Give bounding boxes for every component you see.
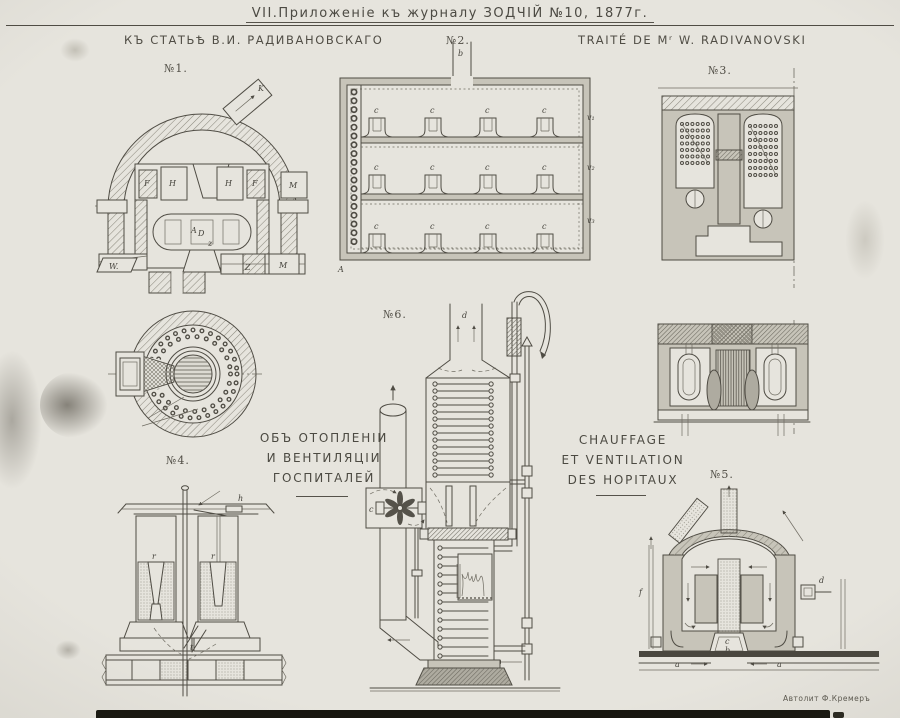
paper-spot-2 <box>60 38 90 62</box>
paper-spot <box>55 640 81 660</box>
fig4-letter-h: h <box>238 494 243 503</box>
round-grate <box>166 347 220 401</box>
caption-russian-rule <box>296 496 348 497</box>
fig2-letter-c: c <box>542 163 547 172</box>
fig5-top-pipe <box>721 486 737 533</box>
fig1-letter-m2: M <box>278 261 288 270</box>
fig2-letter-a: A <box>337 265 344 274</box>
fig6-right-pipes <box>507 292 550 680</box>
fig6-apparatus: d <box>362 288 567 693</box>
round-fire-door <box>116 352 144 396</box>
fig1-letter-d: D <box>197 229 205 238</box>
lithograph-plate: VII.Приложеніе къ журналу ЗОДЧІЙ №10, 18… <box>0 0 900 718</box>
fig6-letter-d: d <box>462 311 467 320</box>
fig2-letter-v3: v₃ <box>587 216 595 225</box>
fig2-letter-b: b <box>458 49 463 58</box>
fig1-letter-a: A <box>190 226 197 235</box>
fig1-letter-k: K <box>257 84 265 93</box>
fig5-damper-box <box>801 585 831 599</box>
fig3-chamber-section <box>652 58 822 295</box>
fig-round-section <box>108 296 263 454</box>
fig5-ground: a a <box>639 651 879 670</box>
paper-spot-3 <box>845 200 885 280</box>
fig1-flue-duct: K <box>223 79 272 125</box>
edge-smudge <box>0 350 42 490</box>
fig6-base <box>370 660 560 691</box>
caption-russian: ОБЪ ОТОПЛЕНІИ И ВЕНТИЛЯЦІИ ГОСПИТАЛЕЙ <box>250 428 398 488</box>
fig2-letter-c: c <box>430 163 435 172</box>
fig6-collar <box>420 528 516 540</box>
fig4-left-column: r <box>136 516 176 622</box>
fig1-capsule: D <box>153 214 251 250</box>
fig6-mid-section <box>426 482 510 528</box>
fig2-letter-c: c <box>374 222 379 231</box>
bottom-print-bar <box>96 710 830 718</box>
plate-header: VII.Приложеніе къ журналу ЗОДЧІЙ №10, 18… <box>0 6 900 21</box>
fig2-letter-v2: v₂ <box>587 163 595 172</box>
fig2-letter-c: c <box>485 222 490 231</box>
fig2-building-plan: b <box>330 34 602 276</box>
fig5-letter-c: c <box>725 637 730 646</box>
fig2-chimney-duct: b <box>453 42 471 80</box>
fig1-letter-w: W. <box>109 262 118 271</box>
fig5-furnace-section: d c b f <box>633 483 888 688</box>
fig3b-tube-bundle <box>716 350 750 406</box>
fig1-letter-h2: H <box>224 179 233 188</box>
fig1-letter-m: M <box>288 181 298 190</box>
fig6-upper-coil <box>426 378 510 482</box>
caption-french-rule <box>596 495 646 496</box>
fig2-letter-c: c <box>542 106 547 115</box>
fig6-letter-c: c <box>369 505 374 514</box>
fig4-stove-elevation: h r r k <box>98 458 295 698</box>
fig1-letter-f: F <box>143 179 150 188</box>
fig2-letter-c: c <box>430 222 435 231</box>
fig4-right-column: r k <box>198 516 238 640</box>
fig1-letter-h: H <box>168 179 177 188</box>
fig1-stove-section: K F H H F M D <box>95 58 310 293</box>
fig3-center-pillar <box>718 114 740 224</box>
fig4-cornice: h <box>118 491 274 518</box>
plate-title: VII.Приложеніе къ журналу ЗОДЧІЙ №10, 18… <box>246 6 655 23</box>
fig2-letter-v1: v₁ <box>587 113 595 122</box>
lithographer-credit: Автолит Ф.Кремеръ <box>783 694 870 703</box>
caption-russian-line2: И ВЕНТИЛЯЦІИ <box>250 448 398 468</box>
fig3b-detail-section <box>652 318 822 440</box>
fig6-top-duct: d <box>426 304 510 378</box>
bottom-print-mark <box>833 712 844 718</box>
fig5-label: №5. <box>710 468 734 481</box>
fig5-letter-a: a <box>675 660 680 669</box>
fig2-letter-c: c <box>374 163 379 172</box>
fig1-letter-f2: F <box>251 179 258 188</box>
ink-stain <box>40 372 108 438</box>
fig2-letter-c: c <box>542 222 547 231</box>
caption-russian-line3: ГОСПИТАЛЕЙ <box>250 468 398 488</box>
fig2-letter-c: c <box>485 106 490 115</box>
fig1-letter-z-small: z <box>207 239 213 248</box>
caption-french-line2: ET VENTILATION <box>548 450 698 470</box>
caption-french-line3: DES HOPITAUX <box>548 470 698 490</box>
title-rule <box>6 25 894 26</box>
fig5-letter-a2: a <box>777 660 782 669</box>
caption-russian-line1: ОБЪ ОТОПЛЕНІИ <box>250 428 398 448</box>
header-right: TRAITÉ DE Mʳ W. RADIVANOVSKI <box>578 33 806 47</box>
fig1-letter-z: Z <box>244 263 251 272</box>
fig5-letter-f: f <box>638 588 644 597</box>
fig2-letter-c: c <box>430 106 435 115</box>
caption-french-line1: CHAUFFAGE <box>548 430 698 450</box>
fig5-letter-d: d <box>819 576 824 585</box>
fig2-letter-c: c <box>485 163 490 172</box>
fig6-lower-body <box>434 540 525 668</box>
fig2-letter-c: c <box>374 106 379 115</box>
caption-french: CHAUFFAGE ET VENTILATION DES HOPITAUX <box>548 430 698 490</box>
